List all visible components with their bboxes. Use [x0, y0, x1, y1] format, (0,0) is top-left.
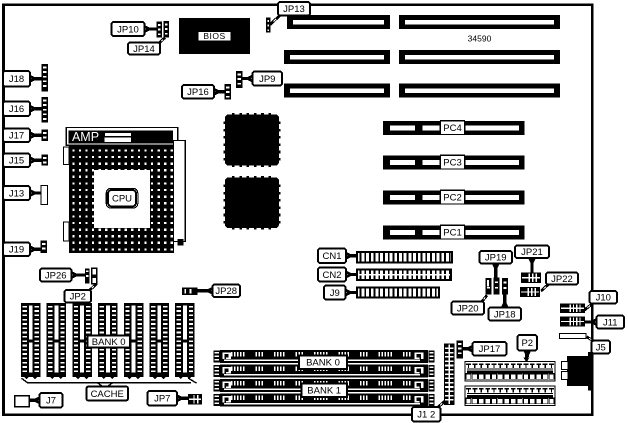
svg-text:J11: J11 — [603, 317, 618, 328]
svg-text:BANK 0: BANK 0 — [306, 358, 340, 369]
svg-text:JP14: JP14 — [133, 44, 155, 55]
svg-text:PC3: PC3 — [443, 157, 461, 168]
svg-text:J16: J16 — [9, 104, 24, 115]
svg-text:JP13: JP13 — [283, 4, 305, 15]
svg-text:JP18: JP18 — [494, 309, 516, 320]
svg-text:PC4: PC4 — [443, 123, 461, 134]
svg-text:CN2: CN2 — [322, 270, 341, 281]
svg-text:JP20: JP20 — [457, 303, 479, 314]
svg-text:J9: J9 — [330, 288, 340, 299]
svg-text:JP19: JP19 — [485, 253, 507, 264]
svg-text:34590: 34590 — [468, 34, 492, 44]
svg-text:JP10: JP10 — [117, 24, 139, 35]
svg-text:CPU: CPU — [112, 194, 132, 205]
svg-text:P2: P2 — [521, 338, 533, 349]
svg-text:J7: J7 — [46, 396, 56, 407]
svg-text:JP26: JP26 — [45, 270, 67, 281]
svg-text:J15: J15 — [9, 156, 24, 167]
svg-text:J10: J10 — [596, 293, 611, 304]
svg-text:J5: J5 — [596, 342, 606, 353]
svg-text:JP7: JP7 — [154, 394, 170, 405]
svg-text:JP17: JP17 — [479, 344, 501, 355]
svg-text:BIOS: BIOS — [203, 31, 225, 41]
svg-text:JP9: JP9 — [259, 74, 275, 85]
svg-text:AMP: AMP — [72, 130, 99, 144]
svg-text:PC2: PC2 — [443, 192, 461, 203]
svg-text:CN1: CN1 — [322, 251, 341, 262]
svg-text:PC1: PC1 — [443, 227, 461, 238]
svg-text:BANK 1: BANK 1 — [307, 386, 341, 397]
svg-text:BANK 0: BANK 0 — [92, 337, 126, 348]
svg-text:JP22: JP22 — [551, 274, 573, 285]
svg-text:J17: J17 — [9, 131, 24, 142]
svg-text:J13: J13 — [9, 188, 24, 199]
svg-text:JP28: JP28 — [215, 286, 237, 297]
svg-text:J18: J18 — [9, 74, 24, 85]
svg-text:J1 2: J1 2 — [417, 410, 435, 421]
svg-text:J19: J19 — [9, 245, 24, 256]
svg-text:JP16: JP16 — [187, 87, 209, 98]
svg-text:JP2: JP2 — [70, 292, 86, 303]
svg-text:JP21: JP21 — [521, 247, 543, 258]
svg-text:CACHE: CACHE — [91, 389, 124, 400]
